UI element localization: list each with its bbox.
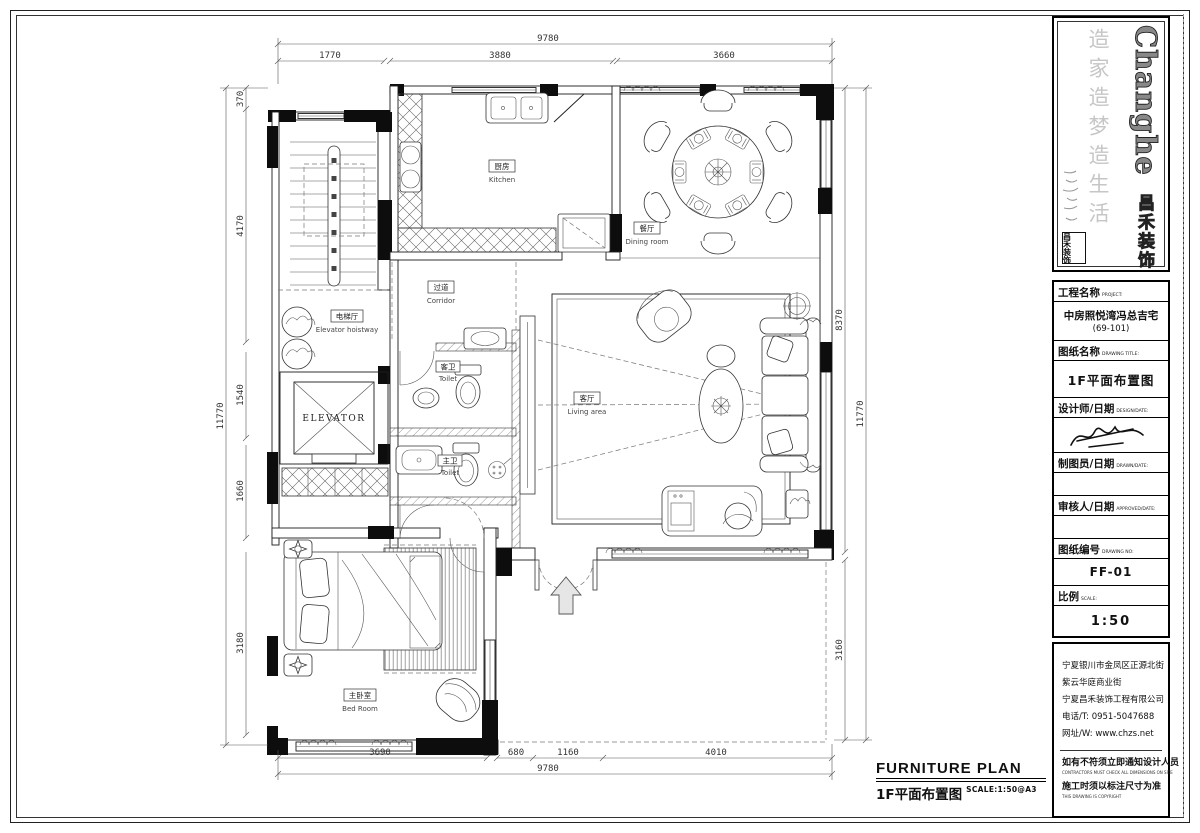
title-block: 工程名称 PROJECT: 中房照悦湾冯总吉宅 (69-101) 图纸名称 DR… — [1052, 280, 1170, 638]
plan-caption-en: FURNITURE PLAN — [876, 760, 1046, 779]
approver-label: 审核人/日期 APPROVED/DATE: — [1054, 495, 1168, 515]
pedestal-sink — [413, 388, 439, 408]
svg-text:Toilet: Toilet — [440, 469, 460, 477]
room-label-bedroom: 主卧室 Bed Room — [342, 689, 378, 713]
svg-text:Dining room: Dining room — [626, 238, 669, 246]
divider — [1060, 750, 1162, 751]
floor-plan: ELEVATOR — [0, 0, 1050, 833]
elevator-hall — [282, 307, 315, 369]
entry-doors — [535, 560, 597, 614]
drawing-sheet: ELEVATOR — [0, 0, 1200, 833]
dim-left-overall: 11770 — [216, 402, 226, 429]
svg-text:主卫: 主卫 — [443, 456, 458, 466]
room-label-corridor: 过道 Corridor — [427, 281, 455, 305]
living-furniture — [520, 281, 821, 553]
plant-icon — [282, 339, 312, 369]
round-stool — [707, 345, 735, 367]
logo-wordmark-en: Changhe — [1129, 25, 1163, 195]
staircase — [290, 142, 376, 286]
scale-value: 1:50 — [1054, 605, 1168, 636]
ceiling-light-icon — [783, 292, 811, 320]
shower-head-icon — [489, 458, 512, 479]
drawing-no-label: 图纸编号 DRAWING NO: — [1054, 538, 1168, 558]
svg-text:1540: 1540 — [236, 384, 246, 406]
address-block: 宁夏银川市金凤区正源北街 紫云华庭商业街 宁夏昌禾装饰工程有限公司 电话/T: … — [1052, 642, 1170, 818]
svg-text:Toilet: Toilet — [438, 375, 458, 383]
svg-text:主卧室: 主卧室 — [349, 690, 372, 700]
svg-text:3160: 3160 — [835, 639, 845, 661]
svg-text:3180: 3180 — [236, 632, 246, 654]
sofa — [760, 318, 821, 472]
note-1-en: CONTRACTORS MUST CHECK ALL DIMENSIONS ON… — [1062, 769, 1160, 777]
elevator-label: ELEVATOR — [302, 414, 365, 424]
svg-text:Kitchen: Kitchen — [489, 176, 515, 184]
drawing-title-value: 1F平面布置图 — [1054, 360, 1168, 397]
dim-right-overall: 11770 — [856, 400, 866, 427]
scale-label: 比例 SCALE: — [1054, 585, 1168, 605]
drafter-label: 制图员/日期 DRAWN/DATE: — [1054, 452, 1168, 472]
svg-text:客卫: 客卫 — [441, 362, 456, 372]
plant-icon — [786, 490, 810, 518]
signature-icon — [1063, 419, 1159, 451]
dim-top-overall: 9780 — [537, 34, 559, 44]
plan-caption-cn: 1F平面布置图 — [876, 783, 962, 803]
project-label: 工程名称 PROJECT: — [1054, 282, 1168, 301]
svg-text:电梯厅: 电梯厅 — [336, 311, 359, 321]
bed — [284, 552, 442, 650]
note-2-en: THIS DRAWING IS COPYRIGHT — [1062, 793, 1160, 801]
svg-text:4170: 4170 — [236, 215, 246, 237]
svg-text:Bed Room: Bed Room — [342, 705, 378, 713]
company-name: 宁夏昌禾装饰工程有限公司 — [1062, 692, 1160, 709]
room-label-elevator-hall: 电梯厅 Elevator hoistway — [316, 310, 378, 334]
fridge — [558, 214, 610, 252]
svg-text:4010: 4010 — [705, 748, 727, 758]
svg-text:餐厅: 餐厅 — [640, 224, 655, 233]
bedroom-furniture — [284, 540, 486, 745]
corner-armchair — [430, 672, 487, 728]
desk — [662, 486, 762, 536]
room-label-kitchen: 厨房 Kitchen — [489, 160, 515, 184]
kitchen-furniture — [398, 93, 610, 252]
designer-label: 设计师/日期 DESIGN/DATE: — [1054, 397, 1168, 417]
plant-icon — [282, 307, 312, 337]
coffee-table — [699, 369, 743, 443]
drafter-value — [1054, 472, 1168, 495]
svg-text:Living area: Living area — [568, 408, 607, 416]
dim-bottom-overall: 9780 — [537, 764, 559, 774]
drawing-no-value: FF-01 — [1054, 558, 1168, 585]
entry-arrow-icon — [551, 577, 581, 614]
svg-text:1160: 1160 — [557, 748, 579, 758]
phone: 电话/T: 0951-5047688 — [1062, 709, 1160, 726]
tv — [520, 316, 535, 494]
calligraphy-signature — [1060, 168, 1082, 226]
svg-text:8370: 8370 — [835, 309, 845, 331]
svg-text:厨房: 厨房 — [495, 161, 510, 171]
svg-text:1770: 1770 — [319, 51, 341, 61]
svg-text:3880: 3880 — [489, 51, 511, 61]
svg-text:3660: 3660 — [713, 51, 735, 61]
website: 网址/W: www.chzs.net — [1062, 726, 1160, 743]
fold-line — [1183, 14, 1184, 817]
company-logo-block: Changhe 昌禾装饰 造家造梦造生活 昌禾装饰 — [1052, 16, 1170, 272]
designer-signature — [1054, 417, 1168, 452]
vanity-sink — [464, 328, 506, 349]
kitchen-counter-bottom — [398, 228, 556, 252]
room-label-master-toilet: 主卫 Toilet — [438, 455, 462, 477]
plan-caption: FURNITURE PLAN 1F平面布置图 SCALE:1:50@A3 — [876, 760, 1046, 803]
address-line: 紫云华庭商业街 — [1062, 675, 1160, 692]
room-label-guest-toilet: 客卫 Toilet — [436, 361, 460, 383]
drawing-title-label: 图纸名称 DRAWING TITLE: — [1054, 340, 1168, 360]
room-label-living: 客厅 Living area — [568, 392, 607, 416]
note-1-cn: 如有不符须立即通知设计人员 — [1062, 757, 1160, 769]
address-line: 宁夏银川市金凤区正源北街 — [1062, 658, 1160, 675]
kitchen-sink — [486, 93, 548, 123]
company-seal: 昌禾装饰 — [1062, 232, 1086, 264]
approver-value — [1054, 515, 1168, 538]
svg-text:3690: 3690 — [369, 748, 391, 758]
svg-text:客厅: 客厅 — [580, 393, 595, 403]
room-label-dining: 餐厅 Dining room — [626, 222, 669, 246]
svg-text:过道: 过道 — [434, 282, 449, 292]
svg-text:Elevator hoistway: Elevator hoistway — [316, 326, 378, 334]
project-value: 中房照悦湾冯总吉宅 (69-101) — [1054, 301, 1168, 340]
svg-text:Corridor: Corridor — [427, 297, 455, 305]
note-2-cn: 施工时须以标注尺寸为准 — [1062, 781, 1160, 793]
armchair — [629, 281, 697, 348]
svg-text:370: 370 — [236, 91, 246, 107]
logo-wordmark-cn: 昌禾装饰 — [1132, 194, 1157, 270]
svg-text:1660: 1660 — [236, 480, 246, 502]
svg-text:680: 680 — [508, 748, 524, 758]
elevator: ELEVATOR — [280, 372, 388, 496]
plan-caption-scale: SCALE:1:50@A3 — [966, 785, 1037, 794]
logo-slogan: 造家造梦造生活 — [1083, 28, 1113, 231]
